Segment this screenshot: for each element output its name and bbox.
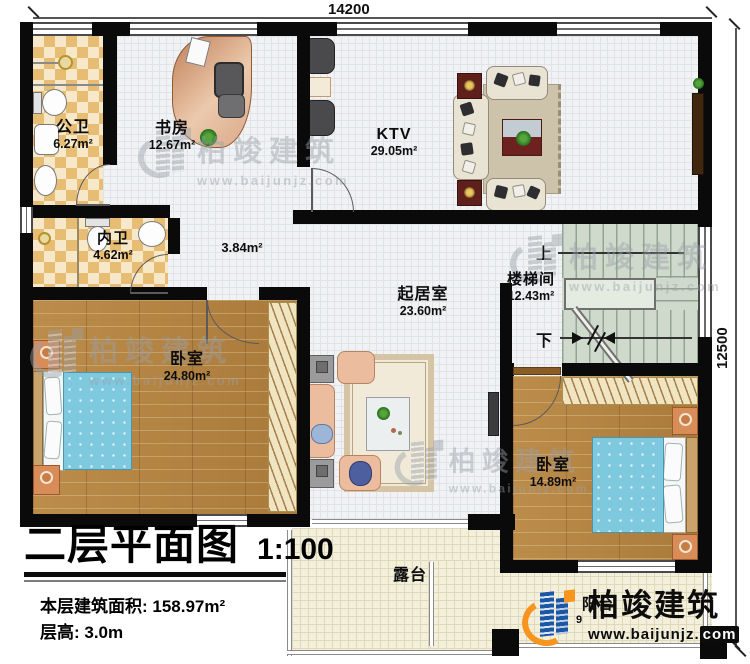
ktv-coffee-table (502, 119, 542, 156)
bedroom2-tv (488, 392, 499, 436)
lamp-icon (679, 413, 692, 426)
title-block: 二层平面图 1:100 (24, 524, 334, 566)
door-bedroom2-leaf (513, 367, 561, 375)
sofa-cushion (462, 160, 477, 175)
person-on-armchair (349, 461, 372, 486)
room-label-publicbath: 公卫6.27m² (42, 119, 104, 151)
door-publicbath-leaf (76, 204, 110, 206)
living-coffee-table (366, 397, 410, 451)
person-on-sofa (311, 424, 333, 444)
total-area-line: 本层建筑面积: 158.97m² (40, 592, 225, 617)
dimension-top-value: 14200 (328, 1, 370, 18)
ktv-sofa-top (486, 66, 548, 100)
sofa-cushion (494, 185, 509, 200)
sofa-cushion (460, 142, 474, 156)
nightstand (672, 407, 698, 435)
window-top-ktv-2 (557, 22, 660, 36)
bed2-headboard (686, 437, 698, 533)
ktv-lamp-table-top (457, 73, 482, 99)
stair-treads-return (656, 276, 698, 312)
stairs-up-line (558, 252, 684, 254)
logo-url: www.baijunjz.com (588, 626, 739, 643)
floor-plan-canvas: 上 下 (0, 0, 750, 664)
room-label-study: 书房12.67m² (138, 120, 206, 152)
room-label-privatebath: 内卫4.62m² (84, 231, 142, 262)
room-label-ktv: KTV29.05m² (362, 126, 426, 158)
wall-mid-vertical-lower (297, 287, 310, 527)
window-right-stairs (698, 227, 712, 337)
living-armchair-top (337, 351, 375, 384)
wall-bedroom1-top-b (259, 287, 310, 300)
title-rule-thin (24, 580, 286, 582)
stair-treads-upper (562, 224, 698, 278)
lamp-icon (679, 540, 692, 553)
stairs-up-label: 上 (536, 240, 552, 264)
sofa-cushion (493, 72, 508, 87)
sofa-cushion (512, 184, 526, 198)
wardrobe-bedroom1 (268, 302, 297, 512)
nightstand (672, 534, 698, 560)
wall-ktv-bottom (293, 210, 712, 224)
nightstand (33, 465, 60, 495)
toilet-tank-publicbath (33, 92, 42, 114)
wall-publicbath-right (103, 36, 117, 165)
study-chair (218, 94, 245, 118)
window-left-privatebath (20, 207, 33, 233)
plan-scale: 1:100 (257, 533, 334, 566)
ktv-sofa-bottom (486, 178, 546, 211)
stair-landing (564, 278, 656, 310)
pillow (662, 484, 683, 523)
ktv-lamp-table-bottom (457, 180, 482, 206)
lamp-icon (40, 471, 53, 484)
lamp-icon (40, 346, 53, 359)
bed2-blanket (592, 437, 664, 533)
sofa-cushion (526, 185, 541, 200)
logo-brand-name: 柏竣建筑 (588, 590, 739, 623)
bed1-blanket (63, 372, 132, 470)
plant-icon (516, 131, 531, 146)
stairs-arrow-right-icon (572, 332, 583, 344)
wall-publicbath-bottom (20, 205, 170, 218)
sofa-cushion (512, 72, 527, 87)
nightstand (33, 340, 60, 369)
sink-privatebath (138, 221, 166, 247)
window-top-study (130, 22, 257, 36)
sofa-cushion (462, 122, 476, 136)
lamp-icon (464, 80, 475, 91)
room-label-terrace: 露台 (382, 567, 438, 585)
logo-building-icon (528, 590, 580, 652)
pillow (44, 376, 63, 415)
wall-stairs-bottom-b (562, 363, 712, 376)
wall-terrace-top-stub (468, 514, 515, 530)
floor-height-line: 层高: 3.0m (40, 618, 123, 643)
ktv-sofa-left (453, 94, 489, 180)
room-label-bedroom2: 卧室14.89m² (514, 457, 592, 489)
sofa-cushion (528, 74, 540, 86)
sofa-cushion (459, 101, 474, 116)
door-ktv-leaf (311, 168, 313, 212)
sink-publicbath (34, 165, 57, 196)
plant-icon (693, 78, 704, 89)
room-label-bedroom1: 卧室24.80m² (148, 351, 226, 383)
terrace-bottom-railing (287, 650, 495, 655)
lamp-icon (464, 187, 475, 198)
living-speaker-top (309, 355, 334, 383)
shower-head-icon (38, 232, 51, 245)
study-monitor (214, 62, 244, 98)
dimension-line-right (735, 28, 737, 646)
dimension-line-top (33, 17, 712, 19)
company-logo: 柏竣建筑 www.baijunjz.com (528, 590, 739, 652)
plan-title: 二层平面图 (24, 524, 239, 566)
room-label-corridor-area: 3.84m² (208, 241, 276, 256)
door-bedroom1-leaf (206, 300, 208, 344)
wall-left (20, 22, 33, 527)
pillow (663, 442, 684, 481)
door-privatebath-leaf (131, 292, 168, 294)
terrace-sliding-door (312, 519, 468, 524)
dimension-right-value: 12500 (714, 305, 731, 369)
window-bedroom2-bottom (578, 560, 675, 573)
stairs-arrow-left-icon (604, 332, 615, 344)
wall-mid-vertical-upper (297, 36, 310, 167)
room-label-stairhall: 楼梯间12.43m² (498, 272, 564, 303)
bed1-headboard (33, 371, 43, 471)
window-top-ktv-1 (337, 22, 468, 36)
privatebath-divider (77, 218, 79, 288)
shower-head-icon (58, 55, 73, 70)
window-top-publicbath (33, 22, 92, 36)
ktv-tv-cabinet (692, 93, 704, 175)
shower-rail (33, 84, 103, 86)
shower-arm (33, 62, 61, 64)
wall-bedroom2-left (500, 374, 513, 573)
title-rule-thick (24, 572, 286, 577)
flower-icon (377, 407, 390, 420)
wall-bedroom1-top-a (20, 287, 207, 300)
stairs-down-label: 下 (536, 327, 552, 351)
column-terrace (492, 629, 519, 656)
toilet-bowl-publicbath (42, 89, 67, 116)
living-speaker-bottom (309, 459, 334, 488)
wall-privatebath-right (168, 218, 180, 254)
pillow (43, 420, 62, 459)
room-label-livingroom: 起居室23.60m² (383, 286, 463, 318)
